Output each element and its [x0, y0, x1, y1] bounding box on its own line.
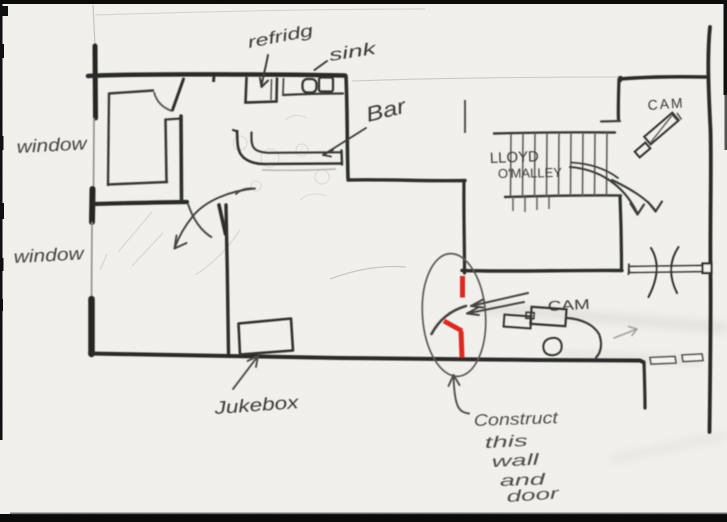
svg-text:window: window	[16, 133, 88, 157]
svg-text:this: this	[484, 433, 528, 452]
svg-text:O'MALLEY: O'MALLEY	[498, 165, 563, 181]
svg-text:CAM: CAM	[647, 94, 685, 113]
svg-text:wall: wall	[491, 452, 540, 471]
svg-text:Construct: Construct	[474, 409, 560, 430]
svg-text:CAM: CAM	[547, 296, 590, 314]
svg-text:window: window	[13, 243, 85, 267]
svg-text:LLOYD: LLOYD	[490, 148, 540, 167]
